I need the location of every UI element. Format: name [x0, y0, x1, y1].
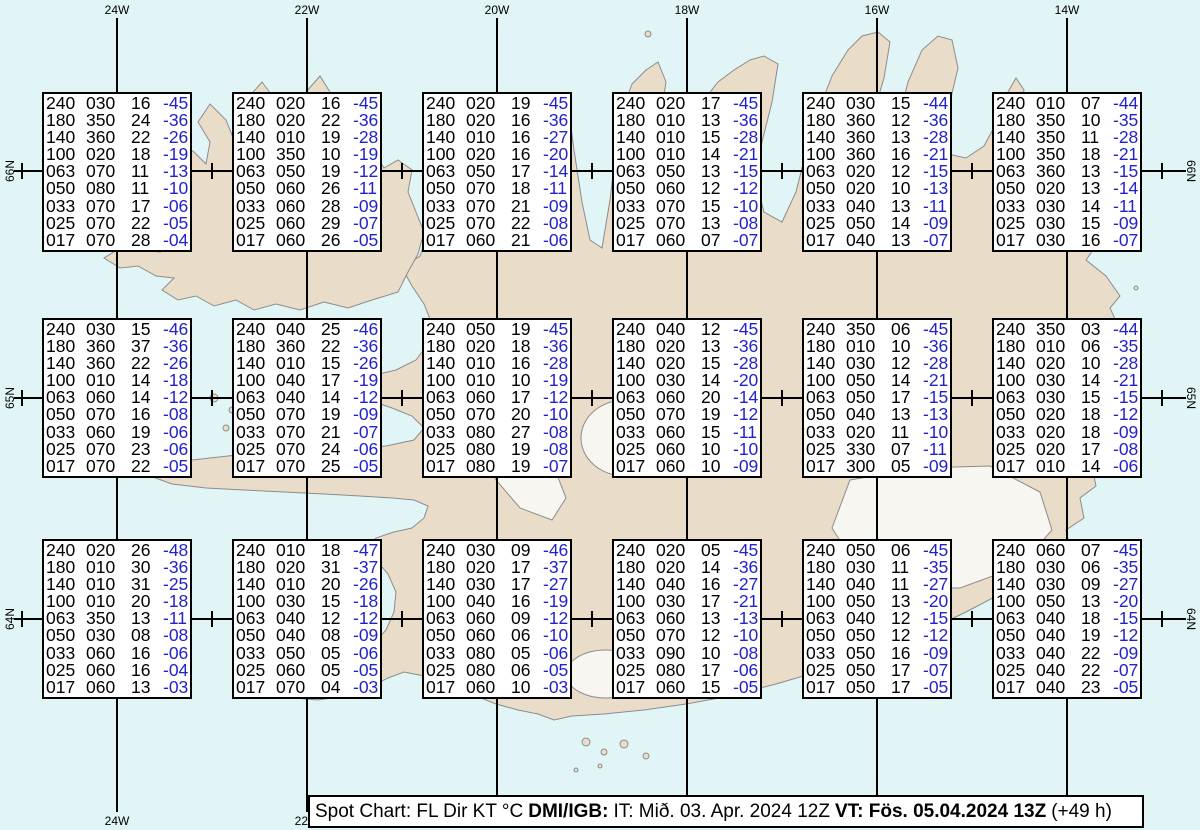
wind-speed-kt: 15: [701, 679, 733, 696]
temperature-c: -05: [733, 679, 758, 696]
spot-box-64n-16w: 24005006-4518003011-3514004011-271000501…: [802, 539, 952, 699]
flight-level: 017: [806, 679, 846, 696]
spot-box-66n-18w: 24002017-4518001013-3614001015-281000101…: [612, 92, 762, 252]
wind-direction: 050: [846, 627, 891, 644]
wind-direction: 050: [846, 679, 891, 696]
temperature-c: -13: [923, 406, 948, 423]
flight-level: 050: [616, 627, 656, 644]
temperature-c: -06: [543, 232, 568, 249]
spot-row: 01707004-03: [236, 679, 380, 696]
temperature-c: -09: [923, 458, 948, 475]
wind-speed-kt: 12: [701, 180, 733, 197]
wind-speed-kt: 04: [321, 679, 353, 696]
wind-direction: 060: [656, 180, 701, 197]
spot-row: 01706015-05: [616, 679, 760, 696]
wind-speed-kt: 13: [891, 232, 923, 249]
spot-row: 01707022-05: [46, 458, 190, 475]
flight-level: 050: [806, 627, 846, 644]
graticule-tick: [591, 611, 593, 627]
latitude-label-left: 64N: [3, 608, 17, 630]
graticule-tick: [1161, 163, 1163, 179]
longitude-label-top: 20W: [485, 3, 510, 17]
flight-level: 017: [46, 232, 86, 249]
spot-row: 05002018-12: [996, 406, 1140, 423]
wind-speed-kt: 16: [131, 406, 163, 423]
flight-level: 017: [236, 458, 276, 475]
graticule-tick: [401, 163, 403, 179]
flight-level: 017: [236, 679, 276, 696]
longitude-label-top: 24W: [105, 3, 130, 17]
spot-box-66n-20w: 24002019-4518002016-3614001016-271000201…: [422, 92, 572, 252]
wind-speed-kt: 10: [891, 180, 923, 197]
wind-speed-kt: 23: [1081, 679, 1113, 696]
wind-speed-kt: 22: [131, 458, 163, 475]
wind-speed-kt: 10: [511, 679, 543, 696]
temperature-c: -03: [163, 679, 188, 696]
graticule-tick: [1161, 611, 1163, 627]
graticule-tick: [211, 390, 213, 406]
wind-speed-kt: 21: [511, 232, 543, 249]
spot-row: 01707025-05: [236, 458, 380, 475]
spot-box-65n-20w: 24005019-4518002018-3614001016-281000101…: [422, 318, 572, 478]
latitude-label-left: 66N: [3, 160, 17, 182]
spot-box-66n-24w: 24003016-4518035024-3614036022-261000201…: [42, 92, 192, 252]
wind-direction: 060: [276, 232, 321, 249]
graticule-tick: [971, 611, 973, 627]
temperature-c: -07: [1113, 232, 1138, 249]
spot-row: 01705017-05: [806, 679, 950, 696]
spot-box-66n-22w: 24002016-4518002022-3614001019-281003501…: [232, 92, 382, 252]
spot-row: 05004013-13: [806, 406, 950, 423]
latitude-label-right: 64N: [1184, 608, 1198, 630]
graticule-tick: [781, 390, 783, 406]
spot-row: 05007019-12: [616, 406, 760, 423]
graticule-tick: [401, 390, 403, 406]
wind-speed-kt: 26: [321, 232, 353, 249]
graticule-tick: [591, 163, 593, 179]
flight-level: 017: [426, 458, 466, 475]
wind-direction: 040: [846, 232, 891, 249]
spot-row: 01701014-06: [996, 458, 1140, 475]
flight-level: 017: [46, 458, 86, 475]
temperature-c: -07: [733, 232, 758, 249]
flight-level: 050: [426, 627, 466, 644]
wind-direction: 060: [466, 679, 511, 696]
graticule-tick: [971, 390, 973, 406]
flight-level: 050: [236, 627, 276, 644]
spot-box-64n-24w: 24002026-4818001030-3614001031-251000102…: [42, 539, 192, 699]
wind-direction: 020: [1036, 180, 1081, 197]
spot-row: 01730005-09: [806, 458, 950, 475]
temperature-c: -12: [733, 180, 758, 197]
wind-speed-kt: 26: [321, 180, 353, 197]
flight-level: 050: [996, 406, 1036, 423]
spot-box-65n-22w: 24004025-4618036022-3614001015-261000401…: [232, 318, 382, 478]
chart-caption: Spot Chart: FL Dir KT °C DMI/IGB: IT: Mi…: [308, 795, 1144, 828]
flight-level: 017: [806, 232, 846, 249]
graticule-tick: [591, 390, 593, 406]
temperature-c: -05: [923, 679, 948, 696]
flight-level: 050: [996, 180, 1036, 197]
spot-box-64n-14w: 24006007-4518003006-3514003009-271000501…: [992, 539, 1142, 699]
wind-speed-kt: 28: [131, 232, 163, 249]
temperature-c: -05: [163, 458, 188, 475]
wind-speed-kt: 18: [511, 180, 543, 197]
flight-level: 050: [236, 406, 276, 423]
graticule-tick: [21, 390, 23, 406]
temperature-c: -11: [353, 180, 377, 197]
wind-speed-kt: 17: [891, 679, 923, 696]
flight-level: 017: [616, 679, 656, 696]
flight-level: 017: [616, 458, 656, 475]
graticule-tick: [401, 611, 403, 627]
flight-level: 017: [426, 679, 466, 696]
temperature-c: -07: [543, 458, 568, 475]
flight-level: 017: [426, 232, 466, 249]
wind-direction: 070: [86, 406, 131, 423]
temperature-c: -10: [733, 627, 758, 644]
wind-speed-kt: 05: [891, 458, 923, 475]
spot-row: 01704013-07: [806, 232, 950, 249]
wind-speed-kt: 19: [511, 458, 543, 475]
flight-level: 017: [616, 232, 656, 249]
longitude-label-top: 14W: [1055, 3, 1080, 17]
spot-row: 05006006-10: [426, 627, 570, 644]
spot-row: 01706010-03: [426, 679, 570, 696]
temperature-c: -05: [1113, 679, 1138, 696]
wind-speed-kt: 19: [701, 406, 733, 423]
wind-speed-kt: 18: [1081, 406, 1113, 423]
spot-row: 05008011-10: [46, 180, 190, 197]
latitude-label-left: 65N: [3, 387, 17, 409]
wind-direction: 070: [276, 679, 321, 696]
wind-speed-kt: 20: [511, 406, 543, 423]
flight-level: 050: [46, 627, 86, 644]
longitude-label-top: 22W: [295, 3, 320, 17]
temperature-c: -08: [163, 406, 188, 423]
flight-level: 050: [46, 180, 86, 197]
caption-source: DMI/IGB:: [528, 801, 608, 823]
wind-speed-kt: 19: [321, 406, 353, 423]
temperature-c: -09: [353, 406, 378, 423]
flight-level: 050: [46, 406, 86, 423]
caption-issue-time: IT: Mið. 03. Apr. 2024 12Z: [613, 801, 830, 823]
wind-direction: 040: [846, 406, 891, 423]
graticule-tick: [211, 611, 213, 627]
wind-speed-kt: 12: [891, 627, 923, 644]
wind-speed-kt: 08: [321, 627, 353, 644]
wind-direction: 060: [86, 679, 131, 696]
temperature-c: -10: [543, 627, 568, 644]
longitude-label-top: 18W: [675, 3, 700, 17]
wind-speed-kt: 08: [131, 627, 163, 644]
wind-speed-kt: 13: [131, 679, 163, 696]
graticule-tick: [211, 163, 213, 179]
grimsey-island: [645, 31, 651, 37]
temperature-c: -09: [353, 627, 378, 644]
flight-level: 050: [806, 406, 846, 423]
temperature-c: -03: [543, 679, 568, 696]
wind-direction: 060: [656, 679, 701, 696]
temperature-c: -12: [923, 627, 948, 644]
caption-lead-time: (+49 h): [1051, 801, 1112, 823]
flight-level: 050: [616, 180, 656, 197]
spot-row: 05007020-10: [426, 406, 570, 423]
graticule-tick: [781, 611, 783, 627]
wind-speed-kt: 13: [891, 406, 923, 423]
wind-direction: 060: [466, 627, 511, 644]
flight-level: 017: [46, 679, 86, 696]
spot-row: 01703016-07: [996, 232, 1140, 249]
spot-box-65n-16w: 24035006-4518001010-3614003012-281000501…: [802, 318, 952, 478]
wind-speed-kt: 14: [1081, 458, 1113, 475]
spot-row: 01706026-05: [236, 232, 380, 249]
caption-valid-time: VT: Fös. 05.04.2024 13Z: [835, 801, 1046, 823]
graticule-tick: [781, 163, 783, 179]
wind-speed-kt: 13: [1081, 180, 1113, 197]
flight-level: 050: [806, 180, 846, 197]
temperature-c: -10: [163, 180, 188, 197]
temperature-c: -14: [1113, 180, 1138, 197]
flight-level: 050: [616, 406, 656, 423]
spot-row: 01707028-04: [46, 232, 190, 249]
spot-box-65n-14w: 24035003-4418001006-3514002010-281000301…: [992, 318, 1142, 478]
caption-title: Spot Chart: FL Dir KT °C: [315, 801, 523, 823]
graticule-tick: [1161, 390, 1163, 406]
temperature-c: -12: [1113, 406, 1138, 423]
wind-direction: 040: [1036, 679, 1081, 696]
spot-box-64n-18w: 24002005-4518002014-3614004016-271000301…: [612, 539, 762, 699]
temperature-c: -03: [353, 679, 378, 696]
spot-box-64n-20w: 24003009-4618002017-3714003017-271000401…: [422, 539, 572, 699]
wind-direction: 070: [86, 232, 131, 249]
wind-speed-kt: 25: [321, 458, 353, 475]
spot-box-66n-16w: 24003015-4418036012-3614036013-281003601…: [802, 92, 952, 252]
wind-direction: 020: [846, 180, 891, 197]
wind-direction: 030: [86, 627, 131, 644]
wind-direction: 080: [466, 458, 511, 475]
temperature-c: -06: [1113, 458, 1138, 475]
wind-speed-kt: 16: [1081, 232, 1113, 249]
wind-direction: 060: [656, 232, 701, 249]
temperature-c: -05: [353, 458, 378, 475]
spot-row: 05004019-12: [996, 627, 1140, 644]
wind-speed-kt: 10: [701, 458, 733, 475]
latitude-label-right: 66N: [1184, 160, 1198, 182]
temperature-c: -10: [543, 406, 568, 423]
wind-speed-kt: 07: [701, 232, 733, 249]
flight-level: 050: [426, 406, 466, 423]
spot-box-64n-22w: 24001018-4718002031-3714001020-261000301…: [232, 539, 382, 699]
spot-row: 05005012-12: [806, 627, 950, 644]
flight-level: 017: [996, 679, 1036, 696]
spot-row: 05007012-10: [616, 627, 760, 644]
graticule-tick: [21, 163, 23, 179]
temperature-c: -13: [923, 180, 948, 197]
temperature-c: -08: [163, 627, 188, 644]
spot-chart: 24W22W20W18W16W14W24W22W66N65N64N66N65N6…: [0, 0, 1200, 830]
spot-box-66n-14w: 24001007-4418035010-3514035011-281003501…: [992, 92, 1142, 252]
flight-level: 050: [426, 180, 466, 197]
wind-direction: 040: [1036, 627, 1081, 644]
wind-direction: 070: [466, 180, 511, 197]
spot-row: 01706013-03: [46, 679, 190, 696]
wind-direction: 010: [1036, 458, 1081, 475]
longitude-label-top: 16W: [865, 3, 890, 17]
spot-row: 05002010-13: [806, 180, 950, 197]
wind-speed-kt: 11: [131, 180, 163, 197]
spot-row: 05003008-08: [46, 627, 190, 644]
flight-level: 017: [996, 232, 1036, 249]
flight-level: 017: [236, 232, 276, 249]
spot-row: 05002013-14: [996, 180, 1140, 197]
wind-direction: 080: [86, 180, 131, 197]
wind-speed-kt: 12: [701, 627, 733, 644]
wind-direction: 070: [276, 406, 321, 423]
latitude-label-right: 65N: [1184, 387, 1198, 409]
wind-direction: 070: [466, 406, 511, 423]
wind-direction: 070: [656, 406, 701, 423]
east-coast-islet: [1134, 286, 1138, 290]
wind-direction: 040: [276, 627, 321, 644]
graticule-tick: [21, 611, 23, 627]
spot-row: 05007018-11: [426, 180, 570, 197]
spot-row: 01706021-06: [426, 232, 570, 249]
spot-row: 05006026-11: [236, 180, 380, 197]
spot-box-65n-18w: 24004012-4518002013-3614002015-281000301…: [612, 318, 762, 478]
wind-direction: 060: [466, 232, 511, 249]
wind-direction: 030: [1036, 232, 1081, 249]
wind-direction: 070: [656, 627, 701, 644]
wind-direction: 300: [846, 458, 891, 475]
wind-direction: 060: [656, 458, 701, 475]
spot-row: 01708019-07: [426, 458, 570, 475]
wind-speed-kt: 19: [1081, 627, 1113, 644]
flight-level: 050: [996, 627, 1036, 644]
temperature-c: -04: [163, 232, 188, 249]
temperature-c: -11: [543, 180, 567, 197]
temperature-c: -12: [1113, 627, 1138, 644]
wind-direction: 070: [276, 458, 321, 475]
westman-islands: [574, 738, 649, 772]
flight-level: 017: [996, 458, 1036, 475]
flight-level: 050: [236, 180, 276, 197]
spot-row: 01706007-07: [616, 232, 760, 249]
spot-box-65n-24w: 24003015-4618036037-3614036022-261000101…: [42, 318, 192, 478]
spot-row: 05006012-12: [616, 180, 760, 197]
wind-direction: 060: [276, 180, 321, 197]
spot-row: 05007016-08: [46, 406, 190, 423]
spot-row: 05004008-09: [236, 627, 380, 644]
wind-speed-kt: 06: [511, 627, 543, 644]
spot-row: 05007019-09: [236, 406, 380, 423]
spot-row: 01704023-05: [996, 679, 1140, 696]
temperature-c: -09: [733, 458, 758, 475]
temperature-c: -12: [733, 406, 758, 423]
longitude-label-bottom: 24W: [105, 814, 130, 828]
wind-direction: 020: [1036, 406, 1081, 423]
wind-direction: 070: [86, 458, 131, 475]
graticule-tick: [971, 163, 973, 179]
spot-row: 01706010-09: [616, 458, 760, 475]
flight-level: 017: [806, 458, 846, 475]
temperature-c: -05: [353, 232, 378, 249]
temperature-c: -07: [923, 232, 948, 249]
